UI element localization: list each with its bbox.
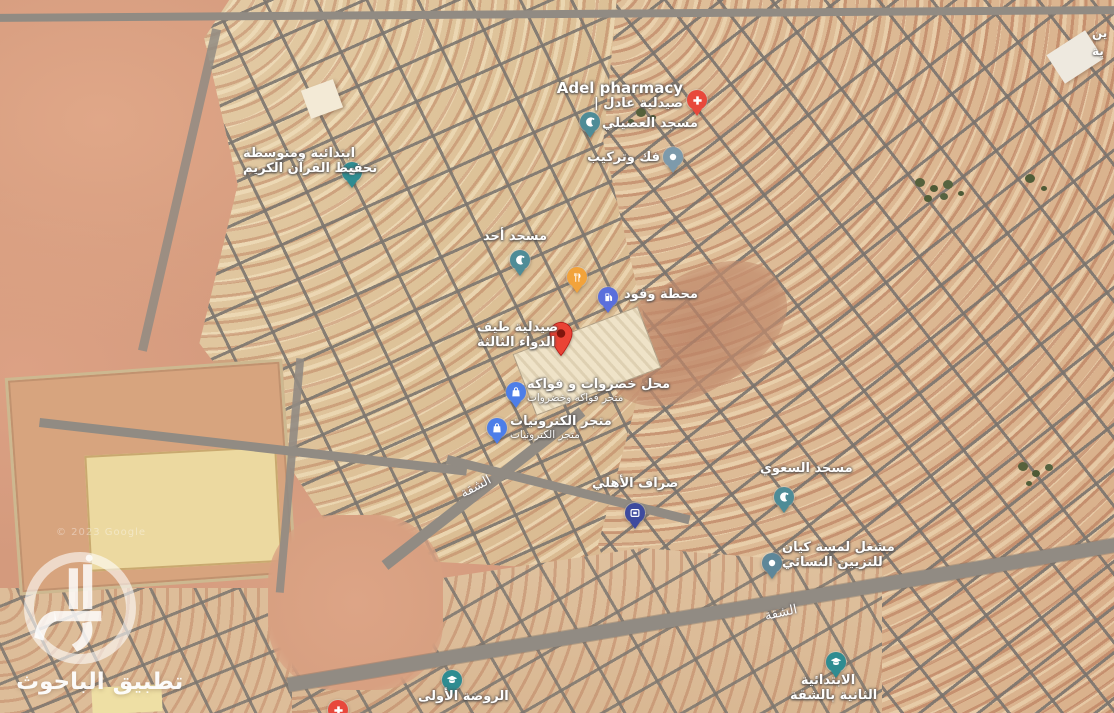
pin-tail bbox=[572, 286, 582, 293]
pin-tail bbox=[492, 437, 502, 444]
app-logo-calligraphy-icon bbox=[24, 552, 136, 664]
pharmacy-cross-icon bbox=[687, 90, 707, 110]
electronics-store-label[interactable]: متجر الكترونياتمتجر الكترونيات bbox=[510, 415, 620, 442]
pin-tail bbox=[585, 131, 595, 138]
ahli-atm-label[interactable]: صراف الأهلي bbox=[592, 477, 667, 492]
saawi-mosque-label[interactable]: مسجد السعوي bbox=[760, 462, 836, 477]
cutoff-label-line: ين bbox=[1092, 24, 1107, 42]
dot-icon bbox=[663, 147, 683, 167]
pin-tail bbox=[511, 401, 521, 408]
gas-station-pin[interactable] bbox=[598, 287, 618, 313]
clipped-red-pin-pin[interactable] bbox=[328, 700, 348, 713]
shopping-bag-icon bbox=[506, 382, 526, 402]
grad-cap-icon bbox=[442, 670, 462, 690]
street-label-1: الشقة bbox=[458, 473, 494, 502]
fakk-tarkib-pin[interactable] bbox=[663, 147, 683, 173]
cutoff-label-line: ية bbox=[1092, 42, 1107, 60]
first-kindergarten-label[interactable]: الروضة الأولى bbox=[418, 690, 486, 705]
gas-pump-icon bbox=[598, 287, 618, 307]
restaurant-pin[interactable] bbox=[567, 267, 587, 293]
taif-aldawa-pharmacy-destination-label[interactable]: صيدلية طيفالدواء الثالثة bbox=[477, 321, 547, 351]
pin-tail bbox=[767, 572, 777, 579]
pin-tail bbox=[515, 269, 525, 276]
adel-pharmacy-pin[interactable] bbox=[687, 90, 707, 116]
cutoff-poi-label[interactable]: ين ية bbox=[1092, 24, 1107, 60]
fakk-tarkib-label[interactable]: فك وتركيب bbox=[578, 151, 660, 166]
usaili-mosque-label[interactable]: مسجد العصيلي bbox=[602, 117, 697, 132]
crescent-icon bbox=[510, 250, 530, 270]
satellite-map[interactable]: Adel pharmacy| صيدلية عادلمسجد العصيليفك… bbox=[0, 0, 1114, 713]
street-label-2: الشقة bbox=[763, 602, 798, 623]
ahli-atm-pin[interactable] bbox=[625, 503, 645, 529]
watermark-app-name: تطبيق الباحوث bbox=[16, 669, 183, 695]
ahad-mosque-label[interactable]: مسجد أحد bbox=[483, 230, 545, 245]
electronics-store-pin[interactable] bbox=[487, 418, 507, 444]
pin-tail bbox=[347, 181, 357, 188]
lamsat-kayan-salon-label[interactable]: مشغل لمسة كيانللتزيين النسائي bbox=[782, 541, 862, 571]
crescent-icon bbox=[774, 487, 794, 507]
pin-tail bbox=[692, 109, 702, 116]
quran-memorization-school-label[interactable]: ابتدائية ومتوسطةتحفيظ القرآن الكريم bbox=[243, 147, 343, 177]
gas-station-label[interactable]: محطة وقود bbox=[624, 288, 694, 303]
bank-icon bbox=[625, 503, 645, 523]
pin-tail bbox=[668, 166, 678, 173]
saawi-mosque-pin[interactable] bbox=[774, 487, 794, 513]
dot-icon bbox=[762, 553, 782, 573]
vegetables-fruits-shop-label[interactable]: محل خضروات و فواكهمتجر فواكه وخضروات bbox=[527, 378, 652, 405]
adel-pharmacy-label[interactable]: Adel pharmacy| صيدلية عادل bbox=[548, 80, 683, 112]
lamsat-kayan-salon-pin[interactable] bbox=[762, 553, 782, 579]
grad-cap-icon bbox=[826, 652, 846, 672]
vegetables-fruits-shop-pin[interactable] bbox=[506, 382, 526, 408]
shopping-bag-icon bbox=[487, 418, 507, 438]
map-pins-layer: Adel pharmacy| صيدلية عادلمسجد العصيليفك… bbox=[0, 0, 1114, 713]
pin-tail bbox=[603, 306, 613, 313]
second-elementary-school-label[interactable]: الابتدائيةالثانية بالشقة bbox=[790, 674, 866, 704]
map-copyright: © 2023 Google bbox=[56, 527, 146, 538]
pharmacy-cross-icon bbox=[328, 700, 348, 713]
crescent-icon bbox=[580, 112, 600, 132]
ahad-mosque-pin[interactable] bbox=[510, 250, 530, 276]
pin-tail bbox=[630, 522, 640, 529]
fork-knife-icon bbox=[567, 267, 587, 287]
usaili-mosque-pin[interactable] bbox=[580, 112, 600, 138]
pin-tail bbox=[779, 506, 789, 513]
